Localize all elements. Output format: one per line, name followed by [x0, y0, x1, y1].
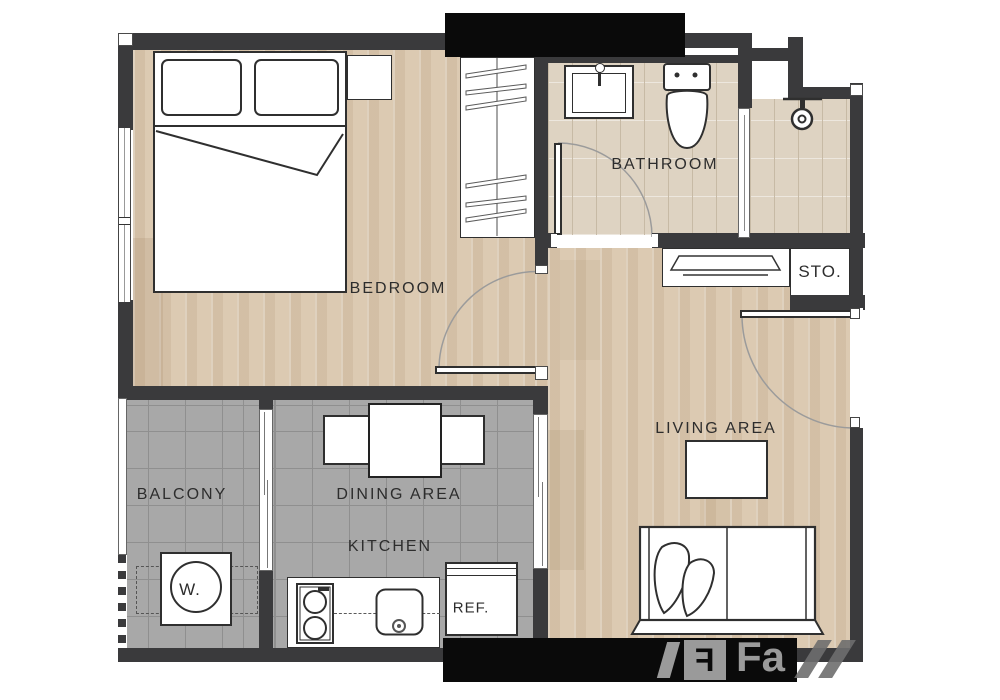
bedroom-window [118, 128, 131, 302]
shower-glass-partition [738, 108, 750, 238]
floor-plan: BEDROOM BATHROOM LIVING AREA BALCONY DIN… [0, 0, 1000, 700]
bathroom-label: BATHROOM [611, 156, 718, 174]
dining-area-label: DINING AREA [336, 486, 461, 504]
bedroom-label: BEDROOM [350, 280, 447, 298]
entry-door-leaf [740, 310, 853, 318]
door-jamb [652, 234, 658, 247]
stove-icon [296, 583, 334, 644]
washer-label: W. [179, 580, 201, 600]
watermark-logo-letter: F [695, 642, 715, 679]
entry-landing-block [445, 13, 685, 57]
kitchen-sink-icon [375, 588, 424, 636]
bedroom-door-arc [439, 271, 547, 370]
wall-balcony-partition-top [259, 386, 273, 409]
wall-bedroom-south [118, 386, 548, 400]
refrigerator-label: REF. [453, 600, 490, 617]
wall-shaft-left [738, 37, 752, 108]
wall-west-upper [118, 33, 133, 130]
door-jamb [850, 417, 860, 428]
entry-door-arc [742, 316, 855, 428]
door-jamb [535, 366, 548, 380]
wall-shaft-top [752, 48, 788, 61]
wall-shaft-right [788, 37, 803, 87]
bathroom-door-leaf [554, 143, 562, 235]
watermark-logo: F [684, 640, 726, 680]
wall-east-upper [850, 83, 863, 308]
door-jamb [850, 308, 860, 319]
window-glass-line [124, 128, 125, 302]
wall-east-lower [850, 428, 863, 662]
balcony-label: BALCONY [137, 486, 227, 504]
door-jamb [551, 234, 557, 247]
corner-notch [118, 33, 133, 46]
wall-west-lower [118, 300, 133, 398]
watermark-text: Fa [736, 636, 785, 678]
entry-door-opening [850, 308, 863, 428]
window-mid-sill [119, 217, 130, 225]
living-dining-sliding-door [533, 414, 548, 569]
faucet-stem [598, 72, 601, 86]
bedroom-door-leaf [435, 366, 537, 374]
dining-table [368, 403, 442, 478]
wall-dining-partition-top [533, 398, 548, 414]
kitchen-label: KITCHEN [348, 538, 432, 556]
balcony-louver-slats [118, 555, 126, 648]
wall-bathroom-south-right [652, 233, 865, 248]
shower-glass-line [744, 115, 745, 231]
balcony-rail [118, 398, 127, 555]
living-area-label: LIVING AREA [655, 420, 777, 438]
storage-label: STO. [798, 262, 841, 282]
partition-end-cap [535, 265, 548, 274]
wall-balcony-partition-bottom [259, 571, 273, 662]
corner-notch [850, 84, 863, 96]
shower-head-icon [781, 92, 825, 136]
balcony-sliding-door [259, 409, 273, 571]
